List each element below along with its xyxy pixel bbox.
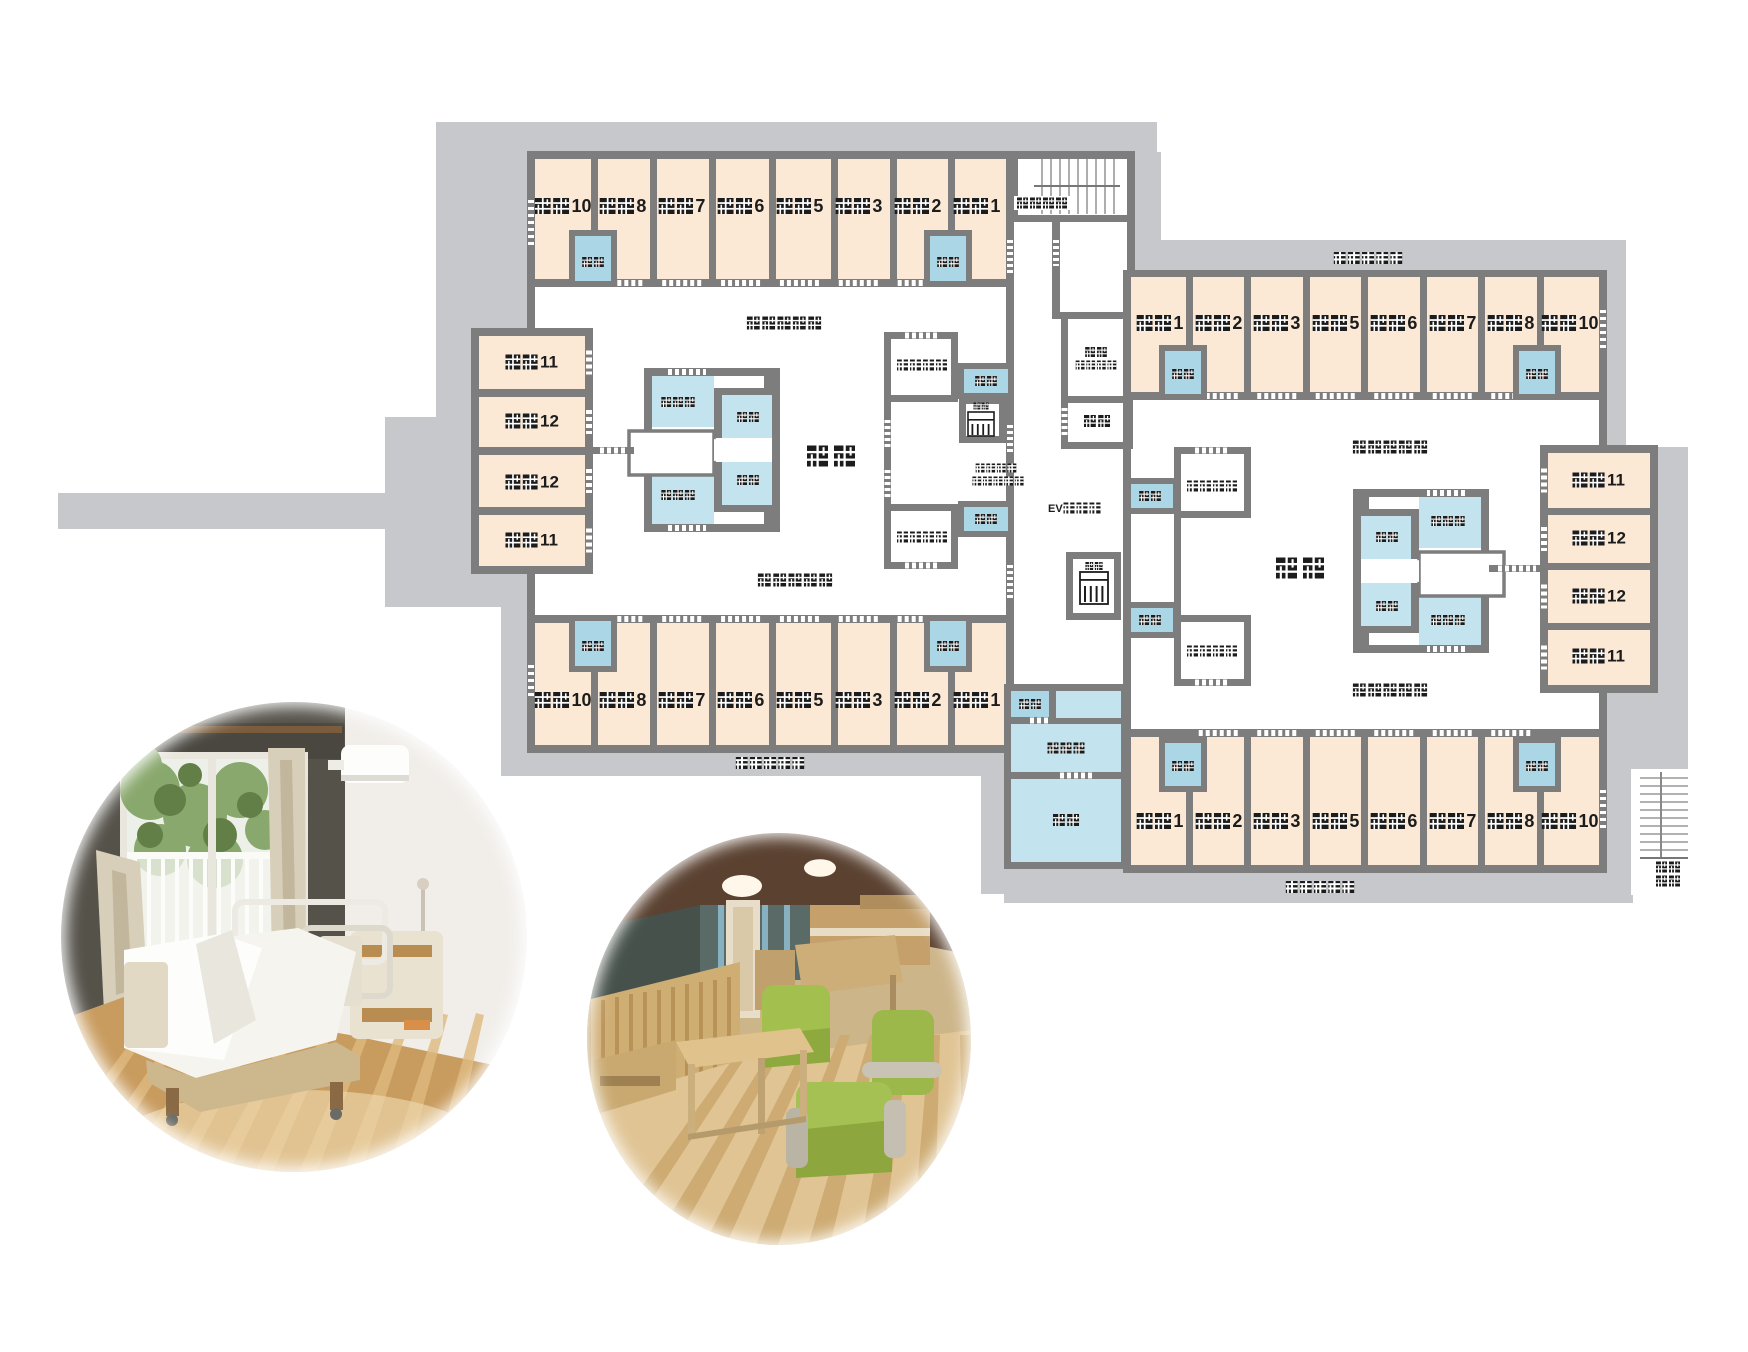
svg-text:8: 8: [1524, 313, 1534, 333]
svg-text:6: 6: [1407, 313, 1417, 333]
svg-text:2: 2: [931, 690, 941, 710]
svg-text:2: 2: [1232, 811, 1242, 831]
svg-text:10: 10: [572, 690, 592, 710]
svg-text:1: 1: [1173, 313, 1183, 333]
svg-text:10: 10: [1579, 811, 1599, 831]
svg-text:12: 12: [1607, 587, 1626, 606]
svg-text:1: 1: [1173, 811, 1183, 831]
svg-text:2: 2: [1232, 313, 1242, 333]
svg-text:6: 6: [1407, 811, 1417, 831]
svg-text:7: 7: [695, 196, 705, 216]
svg-text:2: 2: [931, 196, 941, 216]
svg-text:12: 12: [1607, 529, 1626, 548]
svg-text:11: 11: [1607, 471, 1625, 490]
svg-text:3: 3: [1290, 313, 1300, 333]
svg-text:8: 8: [636, 690, 646, 710]
svg-text:12: 12: [540, 412, 559, 431]
svg-text:12: 12: [540, 473, 559, 492]
svg-text:7: 7: [1466, 811, 1476, 831]
svg-text:5: 5: [813, 690, 823, 710]
svg-text:EV: EV: [1048, 503, 1063, 515]
svg-text:6: 6: [754, 690, 764, 710]
svg-text:3: 3: [872, 690, 882, 710]
svg-text:3: 3: [872, 196, 882, 216]
svg-text:5: 5: [1349, 811, 1359, 831]
svg-text:6: 6: [754, 196, 764, 216]
svg-text:11: 11: [1607, 647, 1625, 666]
svg-text:8: 8: [636, 196, 646, 216]
svg-text:3: 3: [1290, 811, 1300, 831]
svg-text:8: 8: [1524, 811, 1534, 831]
svg-text:11: 11: [540, 531, 558, 550]
svg-text:10: 10: [1579, 313, 1599, 333]
svg-text:1: 1: [990, 690, 1000, 710]
svg-text:7: 7: [695, 690, 705, 710]
svg-text:1: 1: [990, 196, 1000, 216]
svg-text:7: 7: [1466, 313, 1476, 333]
svg-text:5: 5: [1349, 313, 1359, 333]
svg-text:5: 5: [813, 196, 823, 216]
svg-text:11: 11: [540, 353, 558, 372]
svg-text:10: 10: [572, 196, 592, 216]
